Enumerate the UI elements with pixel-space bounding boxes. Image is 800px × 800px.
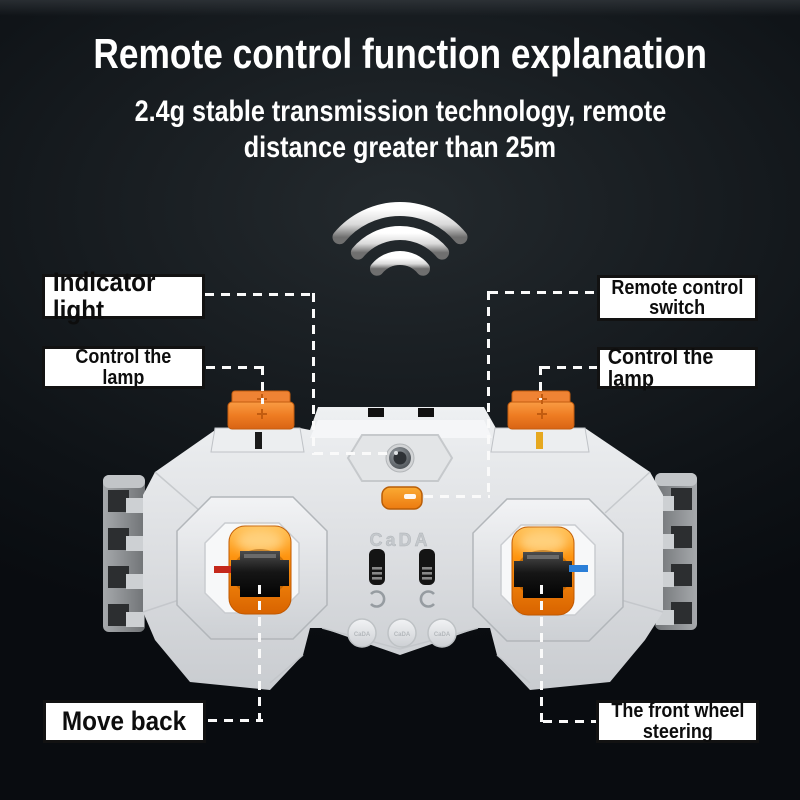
indicator-light-assembly xyxy=(348,435,452,481)
connector-line-indicator-h2 xyxy=(314,452,388,455)
svg-text:CaDA: CaDA xyxy=(394,632,411,638)
power-switch-button xyxy=(382,487,422,509)
callout-move-back: Move back xyxy=(43,700,206,743)
brand-logo: CaDA xyxy=(369,530,430,550)
right-pedestal-stripe xyxy=(536,432,543,449)
connector-line-indicator-h1 xyxy=(205,293,317,296)
connector-line-lamp-left-v xyxy=(261,366,264,404)
connector-line-steering-v xyxy=(540,585,543,723)
page-title: Remote control function explanation xyxy=(0,30,800,78)
left-joystick xyxy=(177,497,327,639)
connector-line-lamp-left-h xyxy=(206,366,264,369)
left-pin-connector xyxy=(103,475,145,632)
top-tab-right xyxy=(418,408,434,417)
svg-text:CaDA: CaDA xyxy=(354,632,371,638)
connector-line-indicator-v xyxy=(312,293,315,455)
remote-control-device: CaDA CaDA CaDA CaDA xyxy=(90,383,710,703)
red-direction-mark xyxy=(214,566,231,573)
connector-line-lamp-right-h xyxy=(541,366,597,369)
function-buttons: CaDA CaDA CaDA xyxy=(348,619,456,647)
connector-line-moveback-h xyxy=(208,719,263,722)
top-tab-left xyxy=(368,408,384,417)
connector-line-switch-v xyxy=(487,291,490,498)
callout-remote-control-switch: Remote control switch xyxy=(597,275,758,321)
right-shoulder-button xyxy=(491,391,589,452)
connector-line-moveback-v xyxy=(258,585,261,722)
connector-line-steering-h xyxy=(543,720,597,723)
blue-direction-mark xyxy=(569,565,588,572)
left-pedestal-notch xyxy=(255,432,262,449)
function-button-2: CaDA xyxy=(388,619,416,647)
svg-text:CaDA: CaDA xyxy=(434,632,451,638)
callout-control-lamp-left: Control the lamp xyxy=(42,346,205,389)
callout-control-lamp-right: Control the lamp xyxy=(597,347,758,389)
connector-line-lamp-right-v xyxy=(539,366,542,400)
right-joystick xyxy=(473,499,623,641)
connector-line-switch-h1 xyxy=(489,291,597,294)
left-shoulder-button xyxy=(211,391,304,452)
right-channel-slider xyxy=(419,549,435,585)
connector-line-switch-h2 xyxy=(424,495,490,498)
product-infographic: Remote control function explanation 2.4g… xyxy=(0,0,800,800)
function-button-1: CaDA xyxy=(348,619,376,647)
callout-indicator-light: Indicator light xyxy=(42,274,205,319)
callout-front-wheel-steering: The front wheel steering xyxy=(596,700,759,743)
function-button-3: CaDA xyxy=(428,619,456,647)
page-subtitle: 2.4g stable transmission technology, rem… xyxy=(0,94,800,166)
wifi-signal-icon xyxy=(315,190,485,292)
left-channel-slider xyxy=(369,549,385,585)
